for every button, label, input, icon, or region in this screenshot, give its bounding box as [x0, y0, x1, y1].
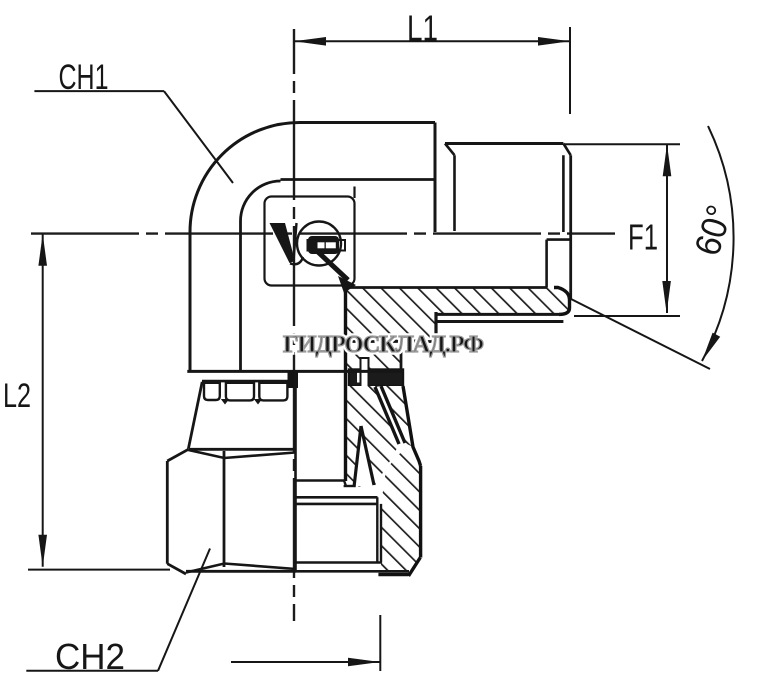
svg-text:L2: L2	[3, 377, 31, 415]
svg-text:L1: L1	[407, 8, 438, 49]
svg-text:ГИДРОСКЛАД.РФ: ГИДРОСКЛАД.РФ	[283, 331, 484, 358]
svg-text:F1: F1	[628, 217, 658, 258]
svg-text:CH1: CH1	[59, 58, 109, 97]
svg-text:CH2: CH2	[55, 636, 125, 677]
